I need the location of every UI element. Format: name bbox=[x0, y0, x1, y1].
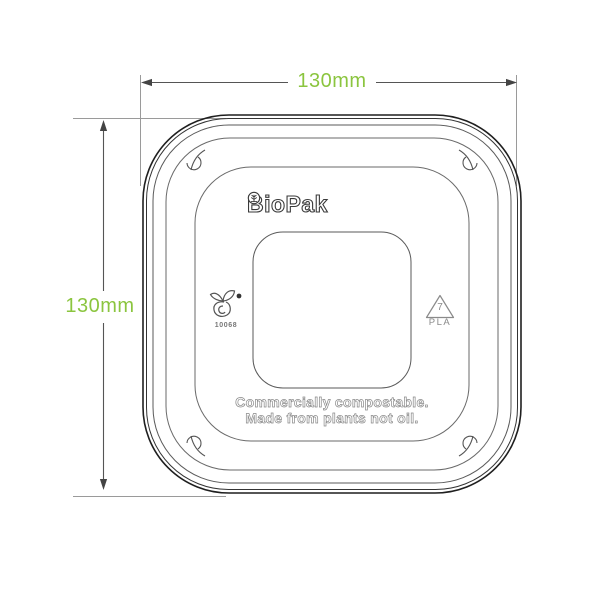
registered-dot-icon bbox=[237, 294, 242, 299]
seedling-compostable-icon bbox=[211, 291, 242, 317]
seedling-certification-number: 10068 bbox=[202, 322, 250, 329]
lid-rim-inner-edge bbox=[147, 119, 518, 490]
resin-material-label: PLA bbox=[420, 317, 460, 328]
lid-center-window bbox=[253, 232, 411, 388]
resin-code-number: 7 bbox=[424, 302, 456, 313]
technical-drawing: 130mm 130mm BioPak 10068 7 PLA Commercia… bbox=[0, 0, 600, 600]
claim-line-2: Made from plants not oil. bbox=[143, 411, 521, 427]
lid-outlines bbox=[143, 115, 521, 493]
lid-corner-tab-icon bbox=[459, 150, 477, 170]
compostable-claim: Commercially compostable. Made from plan… bbox=[143, 395, 521, 426]
width-dimension-label: 130mm bbox=[290, 70, 374, 93]
lid-corner-tab-icon bbox=[187, 436, 205, 456]
lid-outer-edge bbox=[143, 115, 521, 493]
biopak-logo: BioPak bbox=[247, 191, 337, 217]
tree-in-circle-icon bbox=[247, 191, 261, 205]
height-dimension-label: 130mm bbox=[60, 295, 140, 318]
lid-corner-tab-icon bbox=[459, 436, 477, 456]
lid-rim-step bbox=[153, 125, 511, 483]
dimension-arrowheads bbox=[100, 79, 517, 490]
lid-corner-tab-icon bbox=[187, 150, 205, 170]
claim-line-1: Commercially compostable. bbox=[143, 395, 521, 411]
